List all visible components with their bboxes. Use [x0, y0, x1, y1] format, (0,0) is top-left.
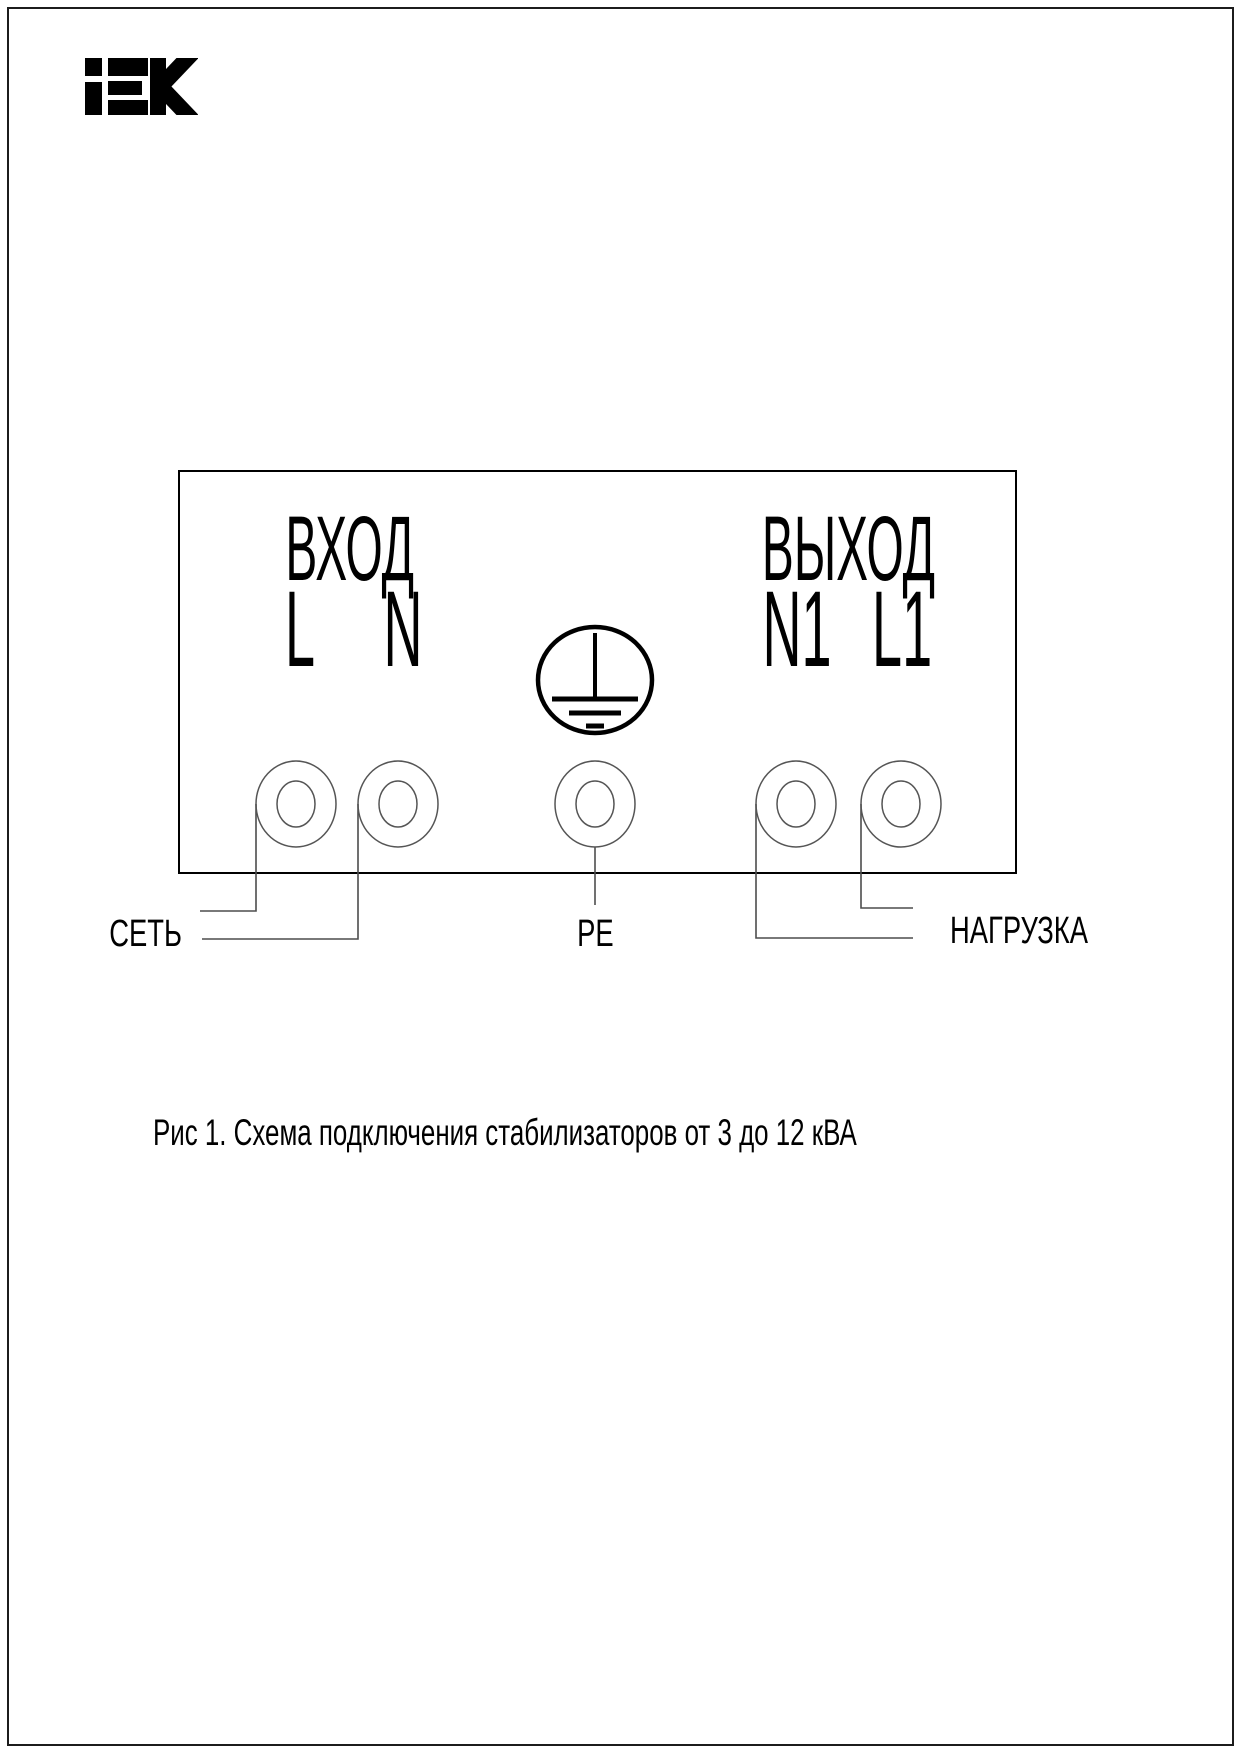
figure-caption: Рис 1. Схема подключения стабилизаторов … — [153, 1112, 1053, 1154]
terminal-label-l1: L1 — [842, 576, 962, 680]
terminal-pe-outer — [555, 761, 635, 847]
terminal-label-l1-text: L1 — [872, 566, 932, 691]
load-label: НАГРУЗКА — [950, 912, 1230, 950]
terminal-l-inner — [277, 781, 315, 827]
terminal-l-outer — [256, 761, 336, 847]
terminal-n1-outer — [756, 761, 836, 847]
terminal-label-n: N — [343, 576, 463, 680]
wire-n-to-mains — [202, 804, 358, 939]
terminal-n1 — [756, 761, 836, 847]
terminal-l — [256, 761, 336, 847]
wire-l-to-mains — [200, 804, 256, 911]
wiring-drawing — [0, 0, 1241, 1753]
pe-label-text: PE — [577, 913, 614, 956]
protective-earth-icon — [538, 627, 652, 733]
terminal-label-n1: N1 — [737, 576, 857, 680]
terminal-n-inner — [379, 781, 417, 827]
figure-caption-text: Рис 1. Схема подключения стабилизаторов … — [153, 1112, 857, 1154]
terminal-label-l: L — [240, 576, 360, 680]
terminal-pe-inner — [576, 781, 614, 827]
terminal-n — [358, 761, 438, 847]
terminal-l1 — [861, 761, 941, 847]
manual-page: ВХОД ВЫХОД L N N1 L1 СЕТЬ PE НАГРУЗКА Ри… — [0, 0, 1241, 1753]
terminal-label-n-text: N — [384, 566, 423, 691]
terminal-label-l-text: L — [285, 566, 315, 691]
terminal-n-outer — [358, 761, 438, 847]
mains-label: СЕТЬ — [40, 915, 182, 953]
terminal-label-n1-text: N1 — [762, 566, 831, 691]
mains-label-text: СЕТЬ — [109, 913, 182, 956]
terminal-pe — [555, 761, 635, 847]
terminal-n1-inner — [777, 781, 815, 827]
load-label-text: НАГРУЗКА — [950, 910, 1088, 953]
terminal-l1-inner — [882, 781, 920, 827]
pe-label: PE — [520, 915, 670, 953]
wire-n1-to-load — [756, 804, 913, 938]
terminal-l1-outer — [861, 761, 941, 847]
